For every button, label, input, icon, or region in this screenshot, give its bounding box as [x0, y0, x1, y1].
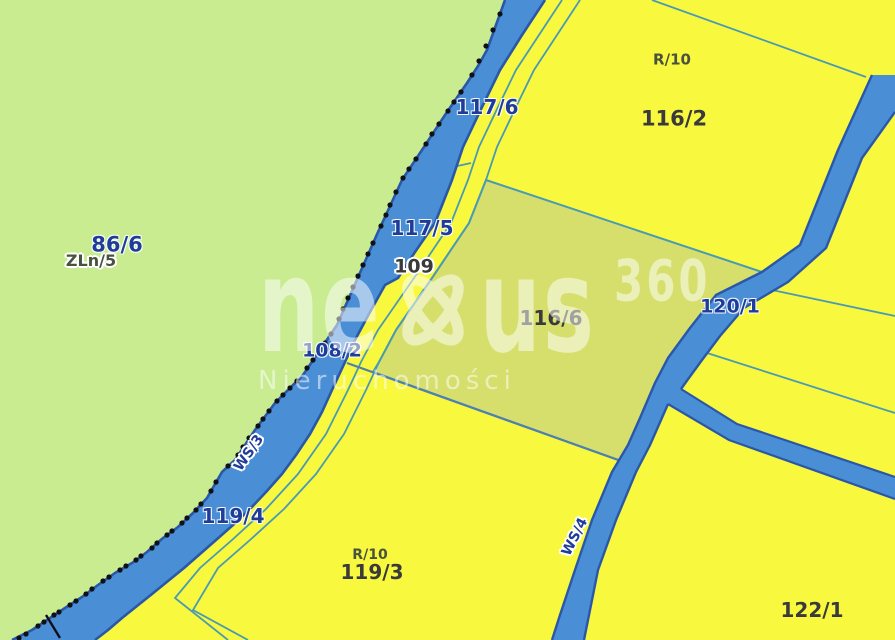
cadastral-map: 86/6 ZLn/5 117/6 117/5 109 108/2 119/4 R… [0, 0, 895, 640]
landuse-label-r10-top: R/10 [653, 53, 691, 68]
parcel-label-109: 109 [394, 258, 434, 277]
parcel-label-116-6: 116/6 [520, 308, 583, 328]
parcel-label-122-1: 122/1 [781, 600, 844, 620]
parcel-label-117-6: 117/6 [456, 97, 519, 117]
parcel-label-117-5: 117/5 [391, 218, 454, 238]
parcel-label-108-2: 108/2 [302, 342, 362, 361]
parcel-label-119-4: 119/4 [202, 506, 265, 526]
parcel-label-116-2: 116/2 [641, 109, 707, 130]
map-canvas [0, 0, 895, 640]
parcel-label-119-3: 119/3 [341, 562, 404, 582]
parcel-label-120-1: 120/1 [700, 298, 760, 317]
landuse-label-zln5: ZLn/5 [66, 253, 116, 269]
